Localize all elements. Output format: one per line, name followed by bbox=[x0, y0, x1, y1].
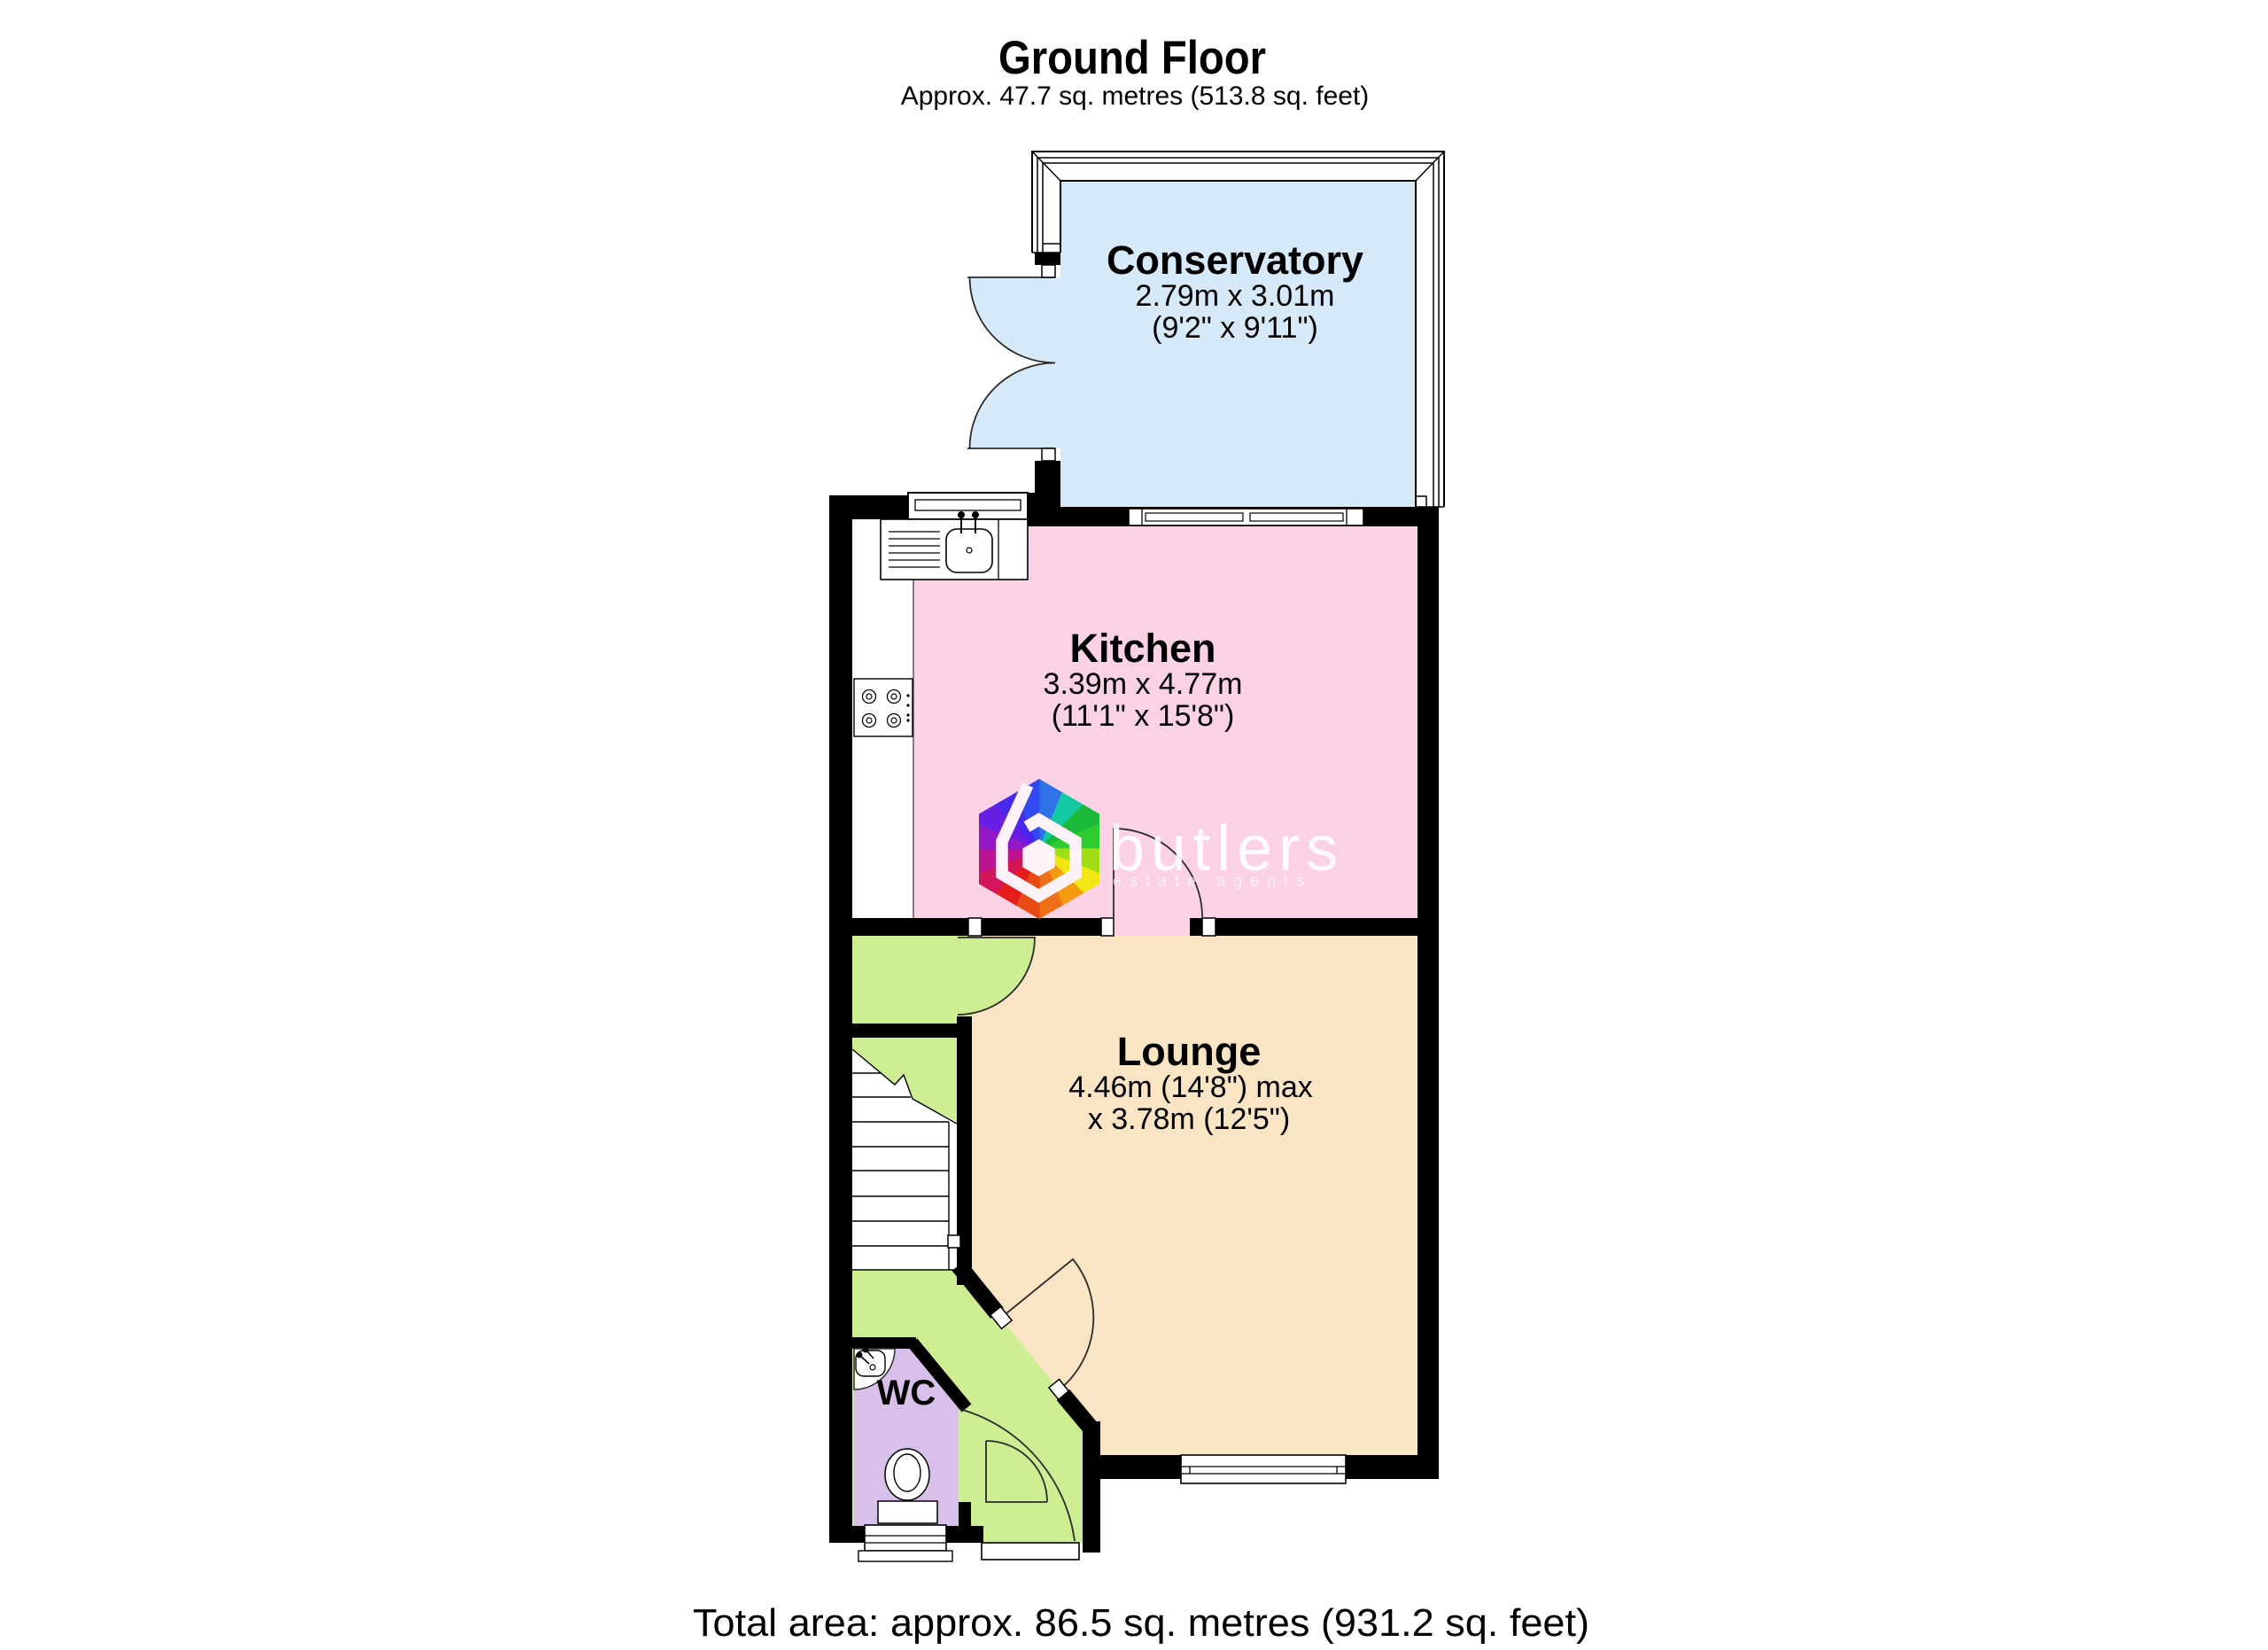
svg-text:(11'1" x 15'8"): (11'1" x 15'8") bbox=[1052, 699, 1235, 733]
svg-text:estate agents: estate agents bbox=[1113, 872, 1312, 890]
svg-text:WC: WC bbox=[877, 1374, 936, 1413]
svg-text:Ground Floor: Ground Floor bbox=[998, 32, 1266, 84]
svg-text:3.39m x 4.77m: 3.39m x 4.77m bbox=[1044, 667, 1243, 701]
svg-text:Conservatory: Conservatory bbox=[1107, 237, 1363, 283]
svg-text:4.46m (14'8") max: 4.46m (14'8") max bbox=[1068, 1070, 1313, 1104]
svg-text:Kitchen: Kitchen bbox=[1069, 626, 1216, 671]
svg-text:x 3.78m (12'5"): x 3.78m (12'5") bbox=[1088, 1102, 1290, 1136]
svg-text:Approx. 47.7 sq. metres (513.8: Approx. 47.7 sq. metres (513.8 sq. feet) bbox=[901, 82, 1370, 111]
svg-text:2.79m x 3.01m: 2.79m x 3.01m bbox=[1136, 279, 1335, 313]
svg-text:Lounge: Lounge bbox=[1117, 1029, 1261, 1074]
svg-text:Total area: approx. 86.5 sq. m: Total area: approx. 86.5 sq. metres (931… bbox=[693, 1601, 1589, 1645]
svg-text:(9'2" x 9'11"): (9'2" x 9'11") bbox=[1152, 311, 1318, 345]
